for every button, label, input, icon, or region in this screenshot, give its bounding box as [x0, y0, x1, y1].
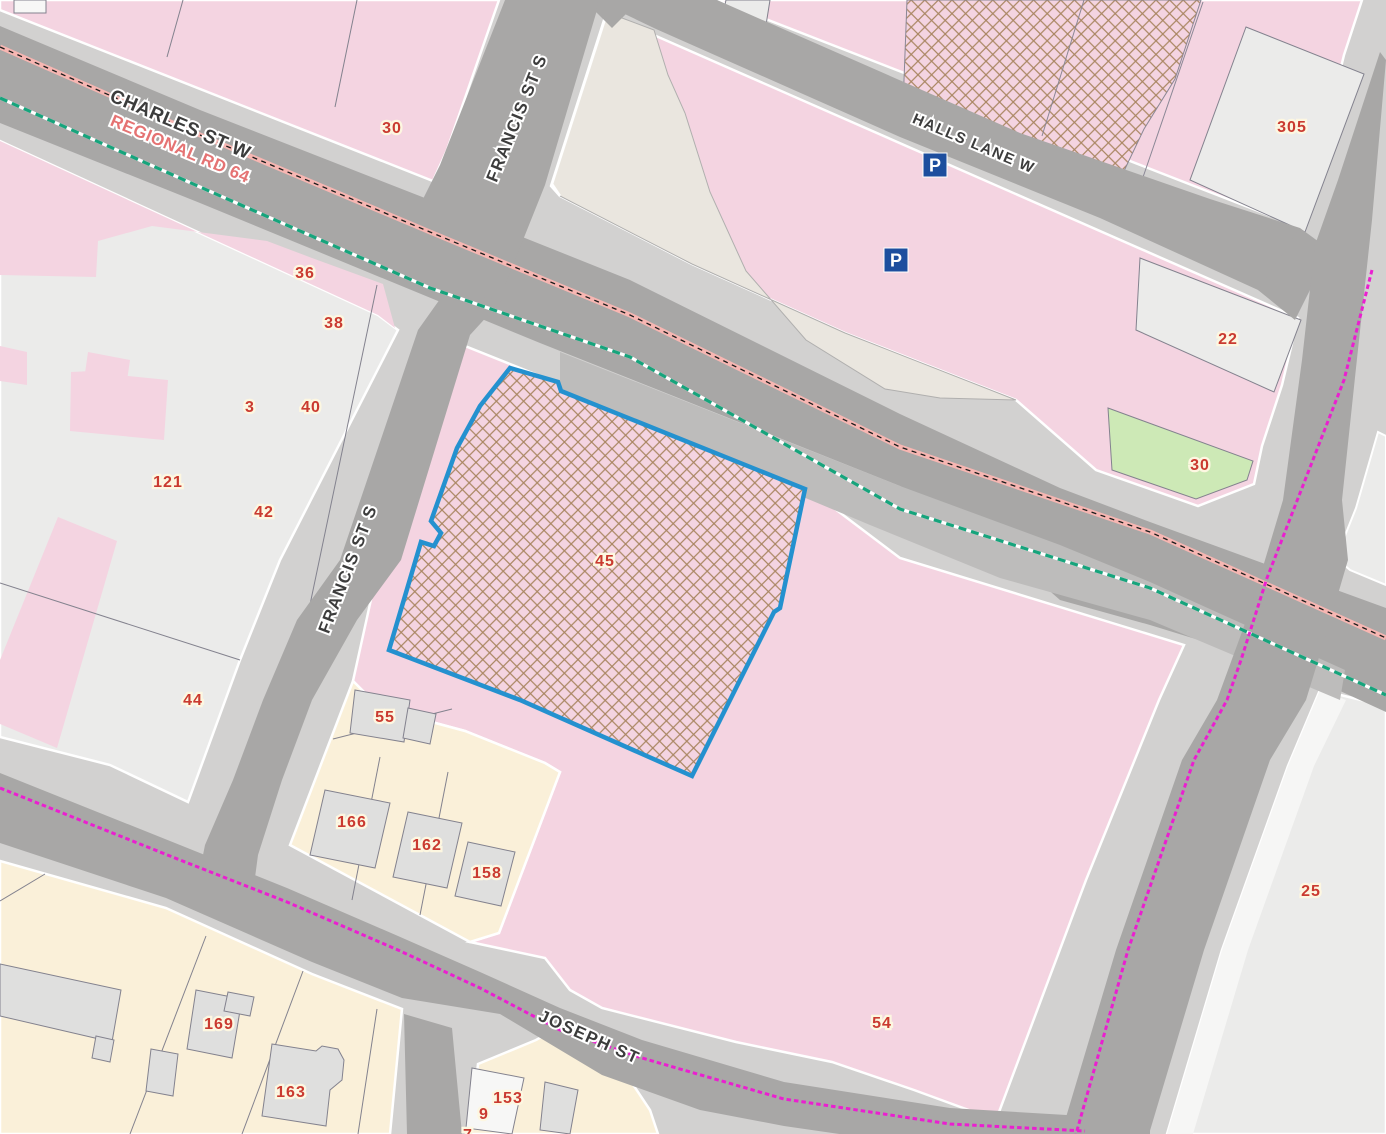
svg-text:163: 163	[276, 1084, 306, 1101]
svg-text:36: 36	[295, 265, 315, 282]
svg-text:22: 22	[1218, 331, 1238, 348]
svg-text:P: P	[890, 251, 902, 271]
svg-text:25: 25	[1301, 883, 1321, 900]
svg-text:30: 30	[1190, 457, 1210, 474]
svg-text:166: 166	[337, 814, 367, 831]
svg-text:30: 30	[382, 120, 402, 137]
svg-text:38: 38	[324, 315, 344, 332]
svg-text:P: P	[929, 156, 941, 176]
svg-text:162: 162	[412, 837, 442, 854]
svg-text:40: 40	[301, 399, 321, 416]
svg-text:153: 153	[493, 1090, 523, 1107]
svg-text:45: 45	[595, 553, 615, 570]
svg-text:3: 3	[245, 399, 255, 416]
svg-text:169: 169	[204, 1016, 234, 1033]
svg-text:44: 44	[183, 692, 203, 709]
svg-text:55: 55	[375, 709, 395, 726]
svg-text:7: 7	[463, 1127, 473, 1134]
svg-text:158: 158	[472, 865, 502, 882]
svg-text:42: 42	[254, 504, 274, 521]
svg-text:9: 9	[479, 1106, 489, 1123]
svg-text:121: 121	[153, 474, 183, 491]
svg-text:305: 305	[1277, 119, 1307, 136]
svg-text:54: 54	[872, 1015, 892, 1032]
